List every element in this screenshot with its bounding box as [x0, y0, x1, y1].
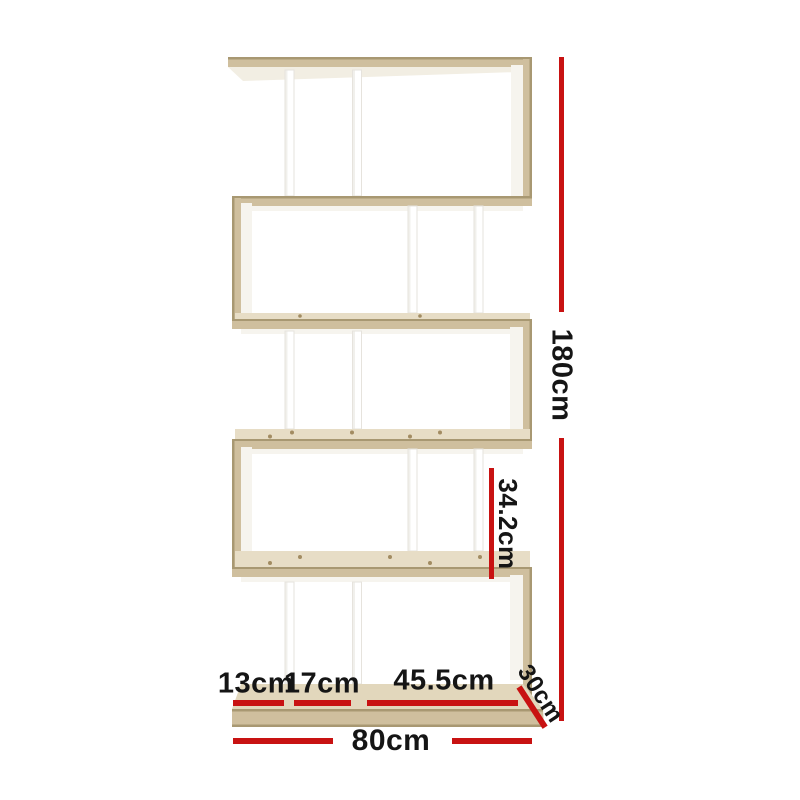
- tier1-right-panel: [511, 59, 532, 197]
- shelf-board-4: [232, 429, 532, 454]
- tier3-right-panel: [510, 321, 532, 439]
- section-right-dimension-label: 45.5cm: [393, 667, 494, 696]
- shelf-board-5: [232, 551, 532, 582]
- tier4-dividers: [408, 449, 483, 551]
- top-shelf-board: [228, 57, 532, 81]
- width-dimension-label: 80cm: [352, 726, 431, 756]
- shelf-board-3: [232, 313, 532, 334]
- section-right-dimension-line: [367, 700, 518, 706]
- section-left-dimension-line: [233, 700, 284, 706]
- tier-gap-dimension-label: 34.2cm: [495, 478, 521, 569]
- width-dimension-line-right: [452, 738, 532, 744]
- section-middle-dimension-label: 17cm: [284, 670, 360, 699]
- tier2-dividers: [408, 206, 483, 313]
- height-dimension-label: 180cm: [547, 329, 576, 422]
- section-middle-dimension-line: [294, 700, 351, 706]
- shelf-board-2: [232, 196, 532, 211]
- product-dimension-diagram: 180cm 34.2cm 13cm 17cm 45.5cm 30cm 80cm: [0, 0, 800, 800]
- section-left-dimension-label: 13cm: [218, 670, 294, 699]
- tier2-left-panel: [232, 198, 252, 319]
- height-dimension-line-upper: [559, 57, 564, 312]
- tier3-dividers: [285, 331, 362, 429]
- tier1-dividers: [285, 70, 362, 196]
- height-dimension-line-lower: [559, 438, 564, 721]
- width-dimension-line-left: [233, 738, 333, 744]
